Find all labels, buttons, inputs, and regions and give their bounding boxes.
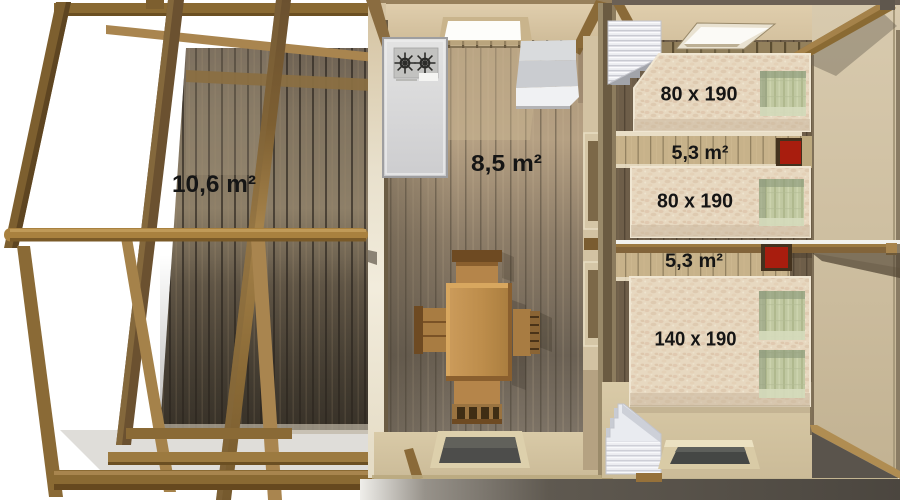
svg-text:10,6 m²: 10,6 m² [172, 171, 256, 198]
svg-text:80 x 190: 80 x 190 [661, 84, 738, 106]
svg-text:140 x 190: 140 x 190 [655, 328, 737, 351]
svg-text:80 x 190: 80 x 190 [657, 191, 733, 213]
svg-text:5,3 m²: 5,3 m² [672, 143, 729, 164]
svg-text:5,3 m²: 5,3 m² [665, 251, 723, 272]
svg-text:8,5 m²: 8,5 m² [471, 150, 542, 176]
